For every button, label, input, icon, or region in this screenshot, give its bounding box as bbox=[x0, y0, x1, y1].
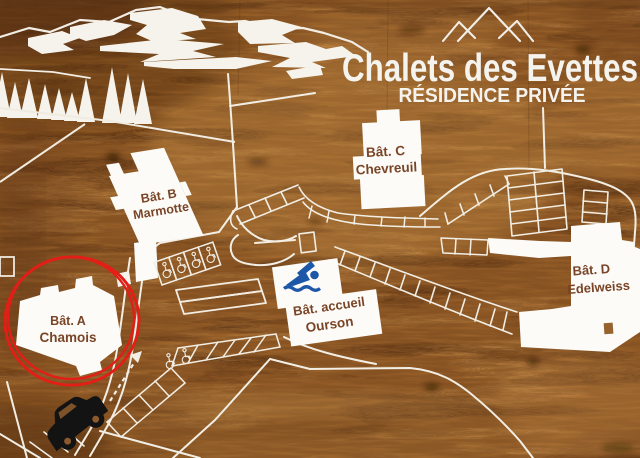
svg-text:Chalets des Evettes: Chalets des Evettes bbox=[342, 47, 638, 90]
svg-text:Bât. C: Bât. C bbox=[366, 143, 406, 160]
svg-text:Bât. A: Bât. A bbox=[50, 314, 86, 328]
svg-text:Bât. D: Bât. D bbox=[572, 261, 611, 279]
svg-text:RÉSIDENCE PRIVÉE: RÉSIDENCE PRIVÉE bbox=[399, 84, 586, 107]
svg-text:Chamois: Chamois bbox=[39, 330, 96, 345]
